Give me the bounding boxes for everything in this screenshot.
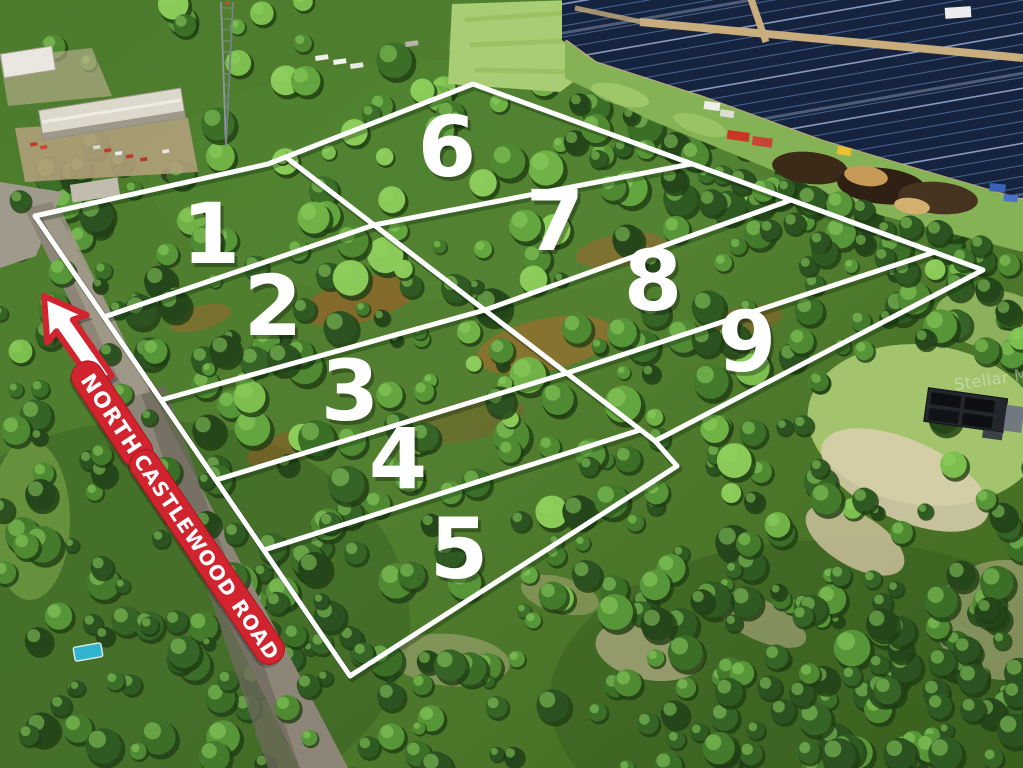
lot-number-2: 2 [244, 257, 302, 355]
aerial-listing-photo: 1 2 3 4 5 6 7 8 9 1 2 3 4 5 6 7 8 9 NORT… [0, 0, 1023, 768]
lot-number-1: 1 [182, 185, 240, 283]
lot-number-6: 6 [418, 98, 476, 196]
lot-number-8: 8 [624, 232, 682, 330]
lot-number-4: 4 [369, 410, 427, 508]
lot-number-5: 5 [430, 500, 488, 598]
aerial-photo-canvas: 1 2 3 4 5 6 7 8 9 1 2 3 4 5 6 7 8 9 NORT… [0, 0, 1023, 768]
tower-beacon [225, 1, 229, 5]
lot-number-7: 7 [526, 172, 584, 270]
lot-number-9: 9 [718, 293, 776, 391]
white-trailer [945, 6, 972, 19]
